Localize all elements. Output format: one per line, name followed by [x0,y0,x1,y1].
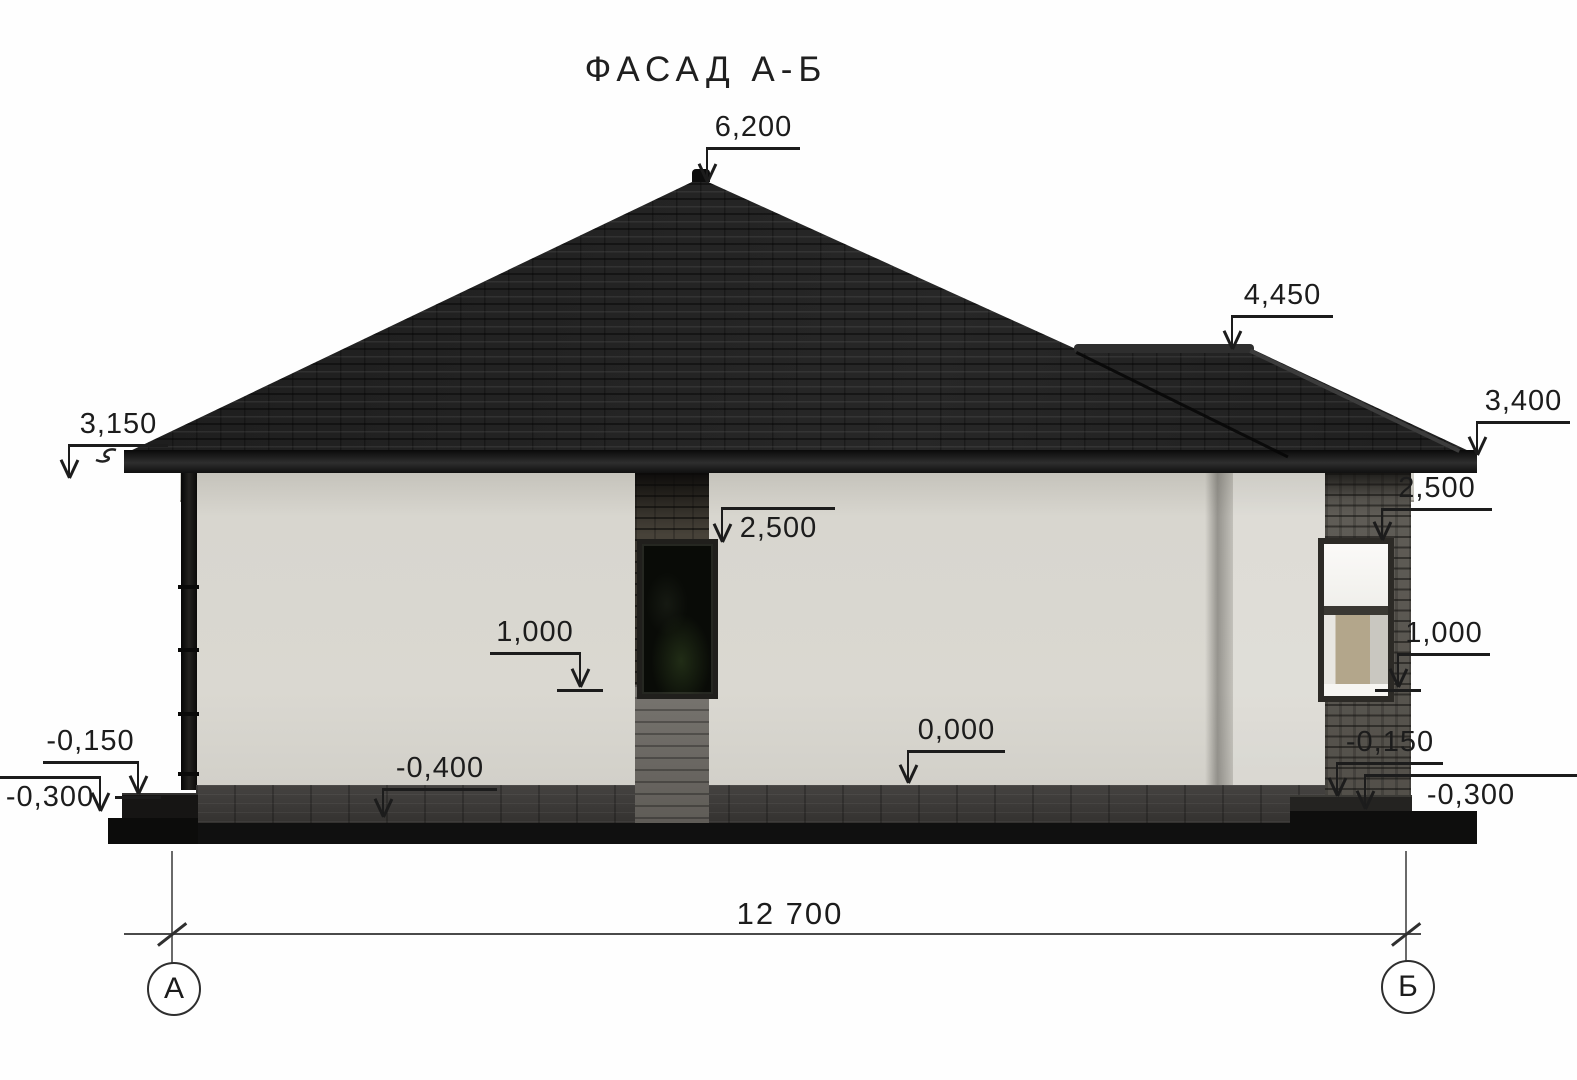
elevation-label: 4,450 [1244,279,1322,312]
foundation-plinth [108,823,1477,844]
arrow-stroke [137,775,148,794]
elevation-shelf [1477,421,1570,424]
elevation-label: 3,150 [80,408,158,441]
elevation-leader [99,776,102,811]
dimension-line [124,933,1421,935]
elevation-shelf [43,761,138,764]
arrow-stroke [59,459,70,478]
elevation-label: 1,000 [1405,617,1483,650]
pilaster-stone-base [635,685,709,823]
roof-fascia [124,450,1477,473]
elevation-shelf [1232,315,1333,318]
elevation-label: -0,300 [1427,779,1515,812]
elevation-label: 6,200 [715,111,793,144]
axis-label-a: А [164,972,184,1006]
roof-peak-cap [692,169,710,182]
extension-line-b [1405,851,1407,961]
page-title: ФАСАД А-Б [530,50,882,90]
roof [124,176,1477,473]
elevation-shelf [0,776,100,779]
elevation-shelf [707,147,800,150]
porch-window [1318,538,1394,702]
elevation-label: 3,400 [1485,385,1563,418]
elevation-label: -0,300 [6,781,94,814]
terrace-paving [196,785,1411,823]
elevation-shelf [1398,653,1490,656]
axis-circle-a: А [147,962,201,1016]
elevation-leader [68,444,71,478]
porch-roof-ridge [1074,344,1254,353]
downpipe-bracket [178,585,199,589]
axis-circle-b: Б [1381,960,1435,1014]
axis-label-b: Б [1398,970,1418,1004]
porch-back-wall [1233,473,1325,785]
right-step-lower [1290,811,1477,844]
downpipe-bracket [178,648,199,652]
elevation-label: -0,150 [46,725,134,758]
downpipe-bracket [178,712,199,716]
break-mark [92,446,118,466]
wall-corner-shadow [1205,473,1233,785]
middle-window [637,539,718,699]
arrow-stroke [1476,436,1487,455]
elevation-leader [137,761,140,794]
porch-window-sash [1324,606,1388,615]
left-step-lower [108,818,198,844]
arrow-stroke [90,792,101,811]
facade-drawing: ФАСАД А-Б 12 700 А Б 6,2004,4503, [0,0,1577,1080]
downpipe [181,468,197,790]
porch-window-upper-pane [1324,544,1388,606]
facade-wall [196,473,1325,785]
arrow-stroke [128,775,139,794]
extension-line-a [171,851,173,963]
porch-window-lower-pane [1324,615,1388,684]
arrow-stroke [99,792,110,811]
overall-dimension: 12 700 [700,896,880,932]
arrow-stroke [68,459,79,478]
downpipe-bracket [178,772,199,776]
